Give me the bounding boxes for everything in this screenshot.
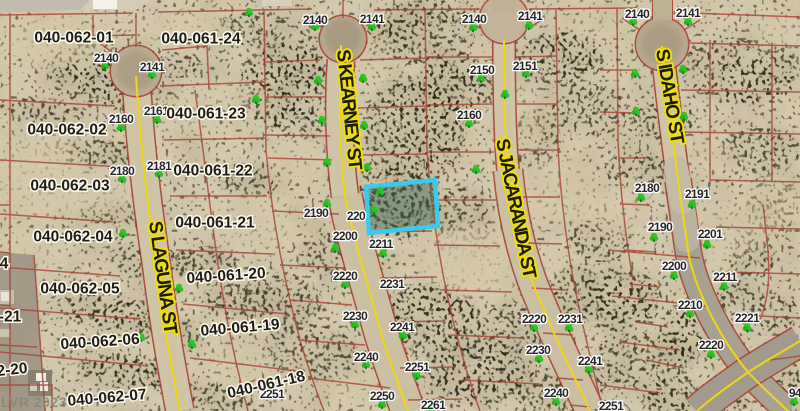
svg-text:040-062-03: 040-062-03 [30, 178, 110, 195]
svg-text:2161: 2161 [144, 104, 169, 118]
svg-text:2200: 2200 [333, 229, 358, 243]
svg-text:2151: 2151 [513, 59, 538, 73]
svg-text:LVR 2023: LVR 2023 [1, 394, 67, 410]
svg-text:2190: 2190 [304, 206, 329, 220]
svg-text:2240: 2240 [544, 386, 569, 400]
svg-text:2221: 2221 [735, 311, 760, 325]
svg-text:2141: 2141 [518, 9, 543, 23]
svg-text:2220: 2220 [522, 312, 547, 326]
svg-text:2201: 2201 [698, 227, 723, 241]
svg-text:2241: 2241 [390, 320, 415, 334]
svg-text:2211: 2211 [369, 237, 394, 251]
svg-text:2181: 2181 [147, 159, 172, 173]
svg-text:2150: 2150 [470, 63, 495, 77]
svg-text:2140: 2140 [625, 7, 650, 21]
svg-text:2200: 2200 [662, 259, 687, 273]
svg-text:2191: 2191 [685, 187, 710, 201]
svg-text:2141: 2141 [140, 60, 165, 74]
svg-text:040-062-05: 040-062-05 [40, 281, 120, 298]
svg-text:040-062-04: 040-062-04 [33, 229, 113, 246]
svg-text:040-061-24: 040-061-24 [161, 31, 241, 48]
svg-text:2160: 2160 [109, 112, 134, 126]
svg-text:2180: 2180 [110, 164, 135, 178]
svg-text:2220: 2220 [699, 338, 724, 352]
svg-text:2241: 2241 [578, 354, 603, 368]
svg-text:040-061-22: 040-061-22 [173, 163, 252, 180]
svg-text:2220: 2220 [333, 269, 358, 283]
svg-text:2261: 2261 [421, 398, 446, 411]
svg-text:040-061-21: 040-061-21 [175, 215, 255, 232]
svg-text:2141: 2141 [360, 12, 385, 26]
svg-text:2141: 2141 [676, 6, 701, 20]
svg-text:2190: 2190 [648, 220, 673, 234]
svg-text:2240: 2240 [354, 350, 379, 364]
svg-text:2140: 2140 [94, 51, 119, 65]
svg-text:2160: 2160 [457, 108, 482, 122]
svg-text:2231: 2231 [380, 277, 405, 291]
svg-text:4: 4 [0, 256, 9, 273]
svg-text:2231: 2231 [558, 312, 583, 326]
svg-text:040-061-23: 040-061-23 [166, 106, 246, 123]
svg-text:2140: 2140 [462, 12, 487, 26]
svg-text:-21: -21 [0, 309, 22, 326]
svg-text:2251: 2251 [405, 360, 430, 374]
svg-text:040-062-01: 040-062-01 [34, 30, 114, 47]
svg-text:2230: 2230 [526, 343, 551, 357]
svg-text:2230: 2230 [343, 309, 368, 323]
svg-text:2251: 2251 [599, 399, 624, 411]
svg-text:2180: 2180 [635, 181, 660, 195]
svg-text:040-062-02: 040-062-02 [27, 122, 106, 139]
svg-text:220: 220 [347, 209, 366, 223]
svg-text:2210: 2210 [678, 298, 703, 312]
svg-text:2211: 2211 [713, 270, 738, 284]
svg-text:2-20: 2-20 [0, 360, 28, 380]
svg-text:2250: 2250 [370, 389, 395, 403]
svg-text:94: 94 [789, 386, 800, 400]
svg-text:2140: 2140 [303, 13, 328, 27]
